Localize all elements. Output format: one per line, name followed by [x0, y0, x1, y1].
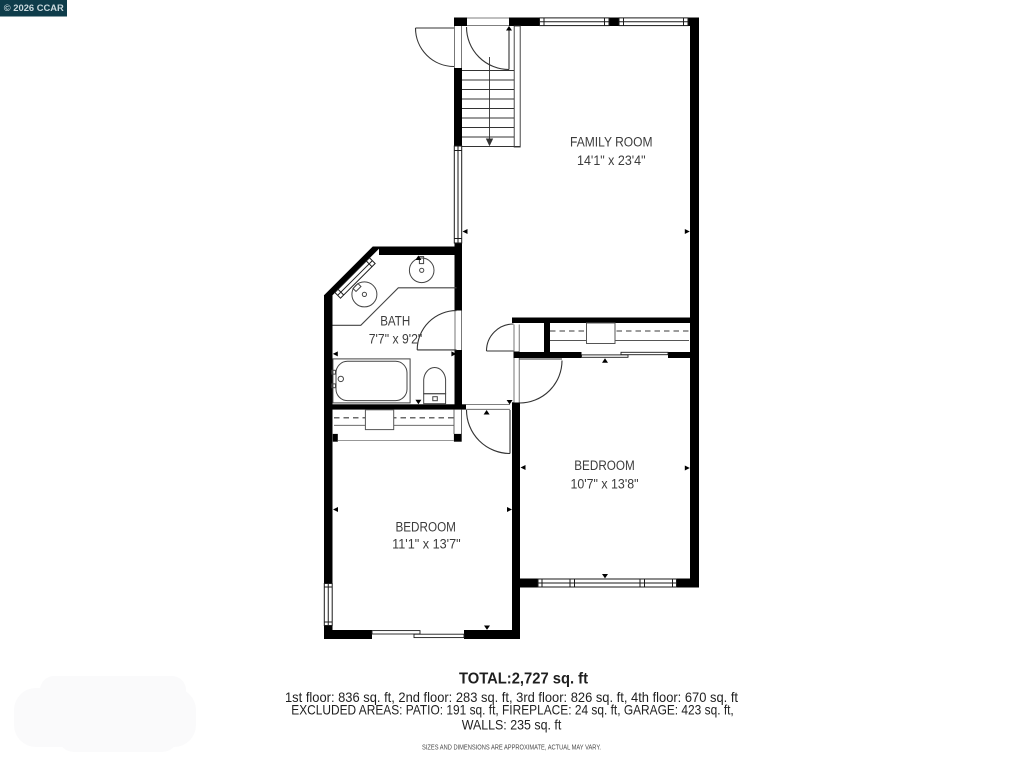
svg-text:WALLS: 235 sq. ft: WALLS: 235 sq. ft — [462, 717, 562, 733]
svg-text:7'7" x 9'2": 7'7" x 9'2" — [369, 332, 423, 347]
svg-text:FAMILY ROOM: FAMILY ROOM — [570, 135, 653, 150]
svg-text:© 2026 CCAR: © 2026 CCAR — [4, 3, 64, 13]
svg-text:BEDROOM: BEDROOM — [574, 458, 635, 473]
svg-text:10'7" x 13'8": 10'7" x 13'8" — [571, 477, 639, 492]
svg-text:SIZES AND DIMENSIONS ARE APPRO: SIZES AND DIMENSIONS ARE APPROXIMATE, AC… — [422, 745, 601, 752]
svg-text:11'1" x 13'7": 11'1" x 13'7" — [392, 537, 461, 552]
svg-text:EXCLUDED AREAS: PATIO: 191 sq.: EXCLUDED AREAS: PATIO: 191 sq. ft, FIREP… — [291, 702, 734, 718]
svg-text:TOTAL:2,727 sq. ft: TOTAL:2,727 sq. ft — [459, 671, 588, 688]
svg-text:BEDROOM: BEDROOM — [395, 520, 456, 535]
svg-text:14'1" x 23'4": 14'1" x 23'4" — [577, 153, 646, 168]
svg-text:BATH: BATH — [380, 314, 410, 329]
